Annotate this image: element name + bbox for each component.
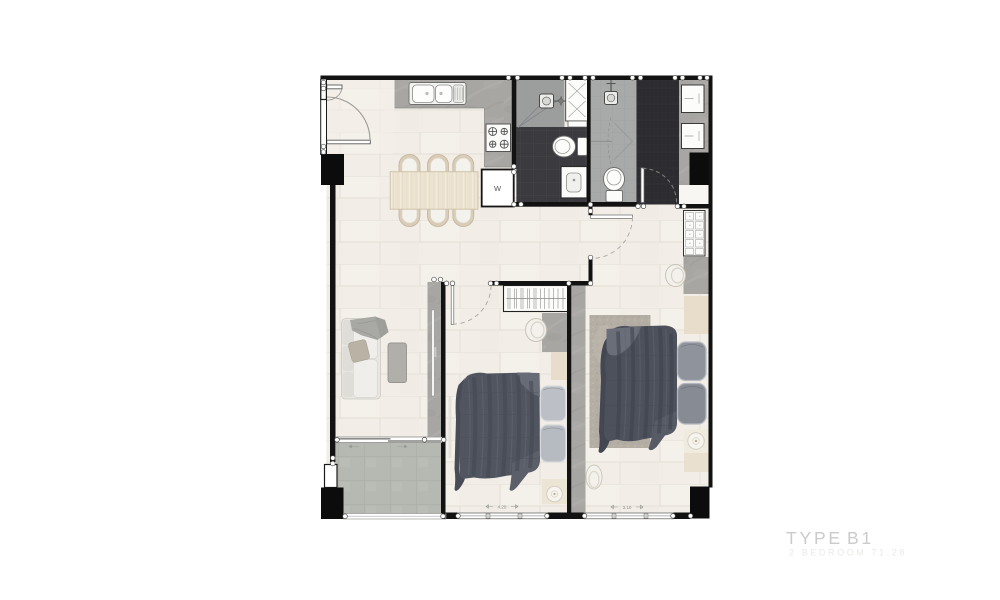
svg-text:2 BEDROOM 71.28: 2 BEDROOM 71.28 [789,548,907,558]
svg-text:W: W [494,184,502,193]
svg-text:4.20: 4.20 [498,505,507,510]
svg-text:3.10: 3.10 [623,505,632,510]
svg-text:B1: B1 [847,528,874,548]
svg-text:TYPE: TYPE [786,528,843,548]
